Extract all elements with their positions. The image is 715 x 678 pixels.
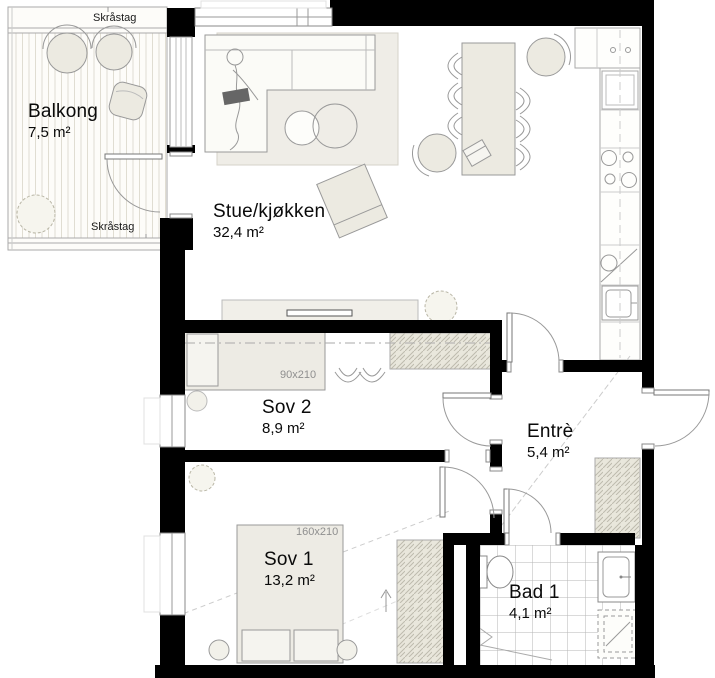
- shower: [598, 610, 638, 658]
- wall-bath-left-inner: [466, 545, 480, 665]
- sov2-furniture: [183, 330, 493, 411]
- wall-bath-left-outer: [443, 545, 454, 665]
- sov2-chairs: [335, 368, 385, 382]
- room-area-stue: 32,4 m²: [213, 225, 325, 241]
- kitchen-counter: [575, 28, 640, 360]
- sov1-nightstand-left: [209, 640, 229, 660]
- dining-endchair-bottom: [413, 134, 456, 176]
- bed-sov1-dimension: 160x210: [296, 526, 338, 538]
- label-sov2: Sov 2 8,9 m²: [262, 398, 312, 437]
- window-balcony-glass-wall: [170, 37, 192, 147]
- bed-sov2-dimension: 90x210: [280, 369, 316, 381]
- wall-bottom: [155, 665, 655, 678]
- wall-sov2-sov1: [160, 450, 445, 462]
- label-bad1: Bad 1 4,1 m²: [509, 583, 560, 622]
- floor-plan-drawing: [0, 0, 715, 678]
- sov2-stool: [187, 391, 207, 411]
- wall-right-upper: [642, 0, 654, 392]
- skrastag-top-label: Skråstag: [93, 12, 136, 24]
- room-name-bad1: Bad 1: [509, 583, 560, 603]
- dining-endchair-top: [527, 34, 570, 76]
- room-area-sov2: 8,9 m²: [262, 421, 312, 437]
- coffee-table-small: [285, 111, 319, 145]
- toilet: [475, 556, 513, 588]
- lounge-chair: [317, 164, 388, 238]
- skrastag-bottom-label: Skråstag: [91, 221, 134, 233]
- wall-left-3: [160, 615, 185, 678]
- sov1-plant: [189, 465, 215, 491]
- living-room-furniture: [205, 33, 457, 323]
- wall-bath-top-right: [560, 533, 635, 545]
- sov1-nightstand-right: [337, 640, 357, 660]
- door-entrance: [642, 388, 709, 449]
- balcony-plant: [17, 195, 55, 233]
- bathroom-sink: [598, 552, 635, 602]
- wall-right-bath: [635, 545, 654, 678]
- label-balkong: Balkong 7,5 m²: [28, 102, 98, 141]
- label-sov1: Sov 1 13,2 m²: [264, 550, 315, 589]
- wall-entre-left-2: [490, 444, 502, 467]
- wall-stue-entre-left: [500, 360, 507, 372]
- wall-top: [330, 0, 654, 26]
- room-area-bad1: 4,1 m²: [509, 606, 560, 622]
- wall-bath-top-left: [443, 533, 507, 545]
- window-sov2: [144, 395, 185, 447]
- wall-top-left-corner: [167, 8, 195, 37]
- room-area-entre: 5,4 m²: [527, 445, 573, 461]
- bed-sov2-pillow: [187, 334, 218, 386]
- bed-sov1-pillow-left: [242, 630, 290, 661]
- room-name-entre: Entrè: [527, 422, 573, 442]
- window-sov1: [144, 533, 185, 615]
- window-top: [195, 1, 332, 26]
- kitchen-corner-cabinet: [575, 28, 640, 68]
- room-area-balkong: 7,5 m²: [28, 125, 98, 141]
- wall-balcony-corner: [160, 218, 193, 250]
- wall-right-mid: [642, 445, 654, 545]
- dining-chairs-left: [448, 53, 462, 139]
- room-name-sov1: Sov 1: [264, 550, 315, 570]
- dining-chairs-right: [516, 88, 530, 170]
- door-sov2: [443, 393, 502, 446]
- room-name-sov2: Sov 2: [262, 398, 312, 418]
- bed-sov1-pillow-right: [294, 630, 338, 661]
- floor-plan: Balkong 7,5 m² Stue/kjøkken 32,4 m² Sov …: [0, 0, 715, 678]
- door-bad1: [504, 489, 560, 545]
- door-stue-entre: [507, 313, 563, 372]
- living-room-plant: [425, 291, 457, 323]
- north-arrow: [381, 590, 391, 612]
- room-name-balkong: Balkong: [28, 102, 98, 122]
- room-area-sov1: 13,2 m²: [264, 573, 315, 589]
- dining-set: [413, 34, 571, 176]
- label-stue: Stue/kjøkken 32,4 m²: [213, 202, 325, 241]
- room-name-stue: Stue/kjøkken: [213, 202, 325, 222]
- tv: [287, 310, 352, 316]
- wall-stue-sov2: [160, 320, 502, 333]
- label-entre: Entrè 5,4 m²: [527, 422, 573, 461]
- wall-kitchen-entre: [563, 360, 642, 372]
